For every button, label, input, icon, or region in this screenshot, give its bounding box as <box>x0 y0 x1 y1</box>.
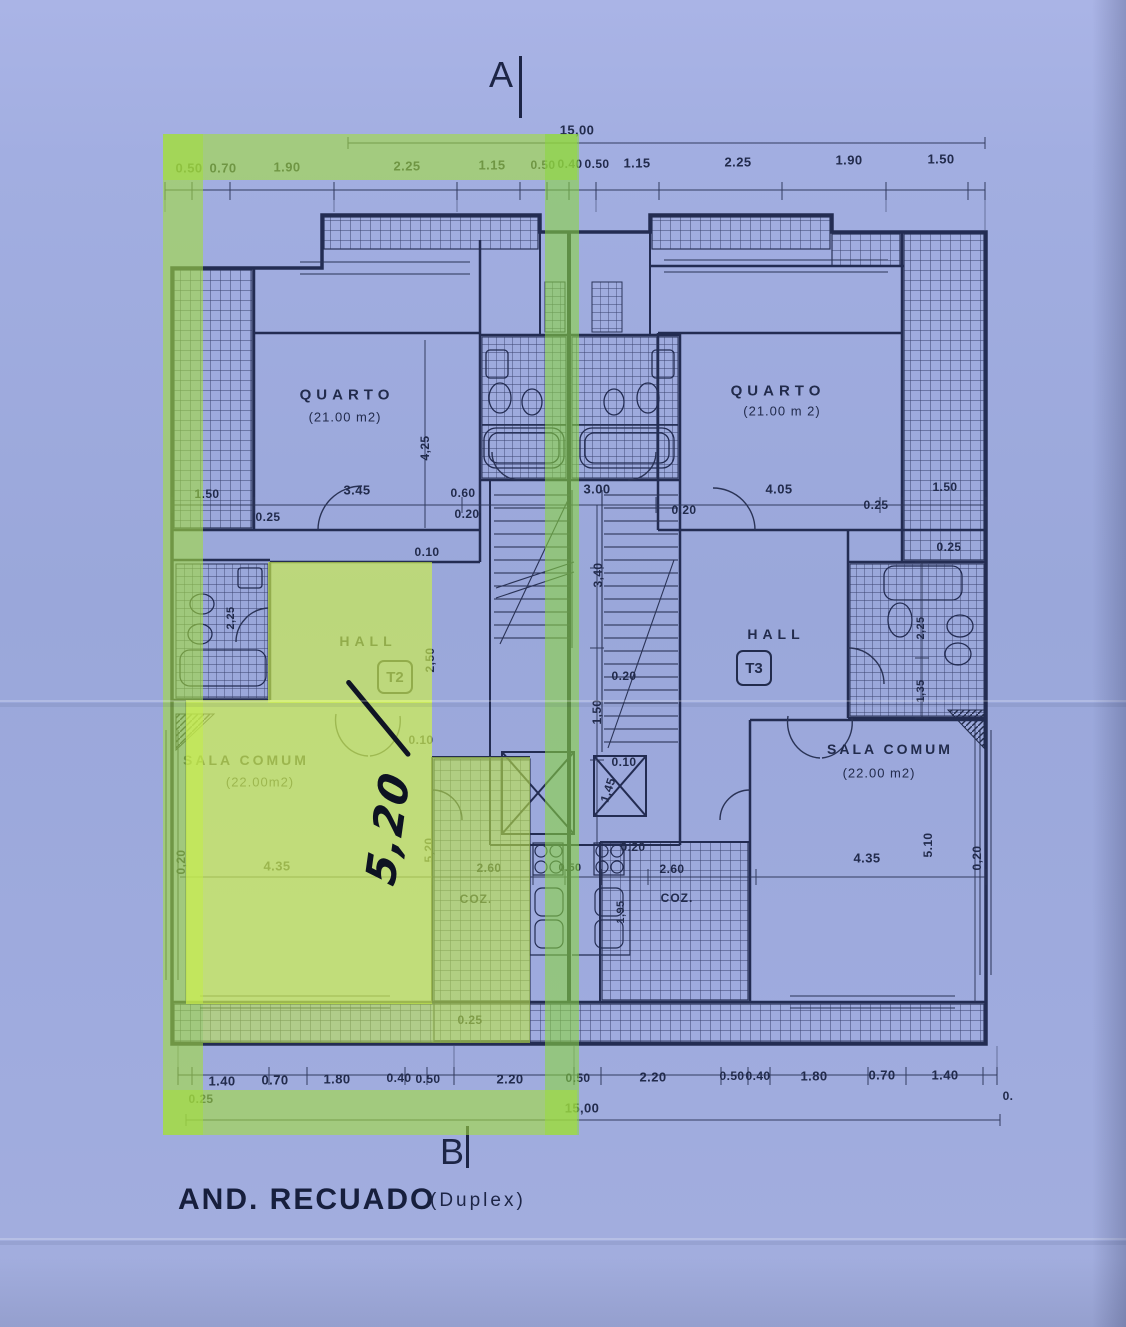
room-label-quarto-left: QUARTO <box>300 387 395 404</box>
paper-edge-shadow <box>1092 0 1126 1327</box>
room-label-sala-right: SALA COMUM <box>827 741 953 757</box>
room-label-coz-left: COZ. <box>460 892 493 906</box>
room-area-quarto-left: (21.00 m2) <box>309 410 382 425</box>
section-marker-a-line <box>519 56 522 118</box>
overall-dim-bottom: 15,00 <box>565 1101 600 1116</box>
room-label-sala-left: SALA COMUM <box>183 752 309 768</box>
unit-tag-t2: T2 <box>377 660 413 694</box>
room-area-quarto-right: (21.00 m 2) <box>743 404 820 419</box>
room-area-sala-right: (22.00 m2) <box>843 766 916 781</box>
room-label-hall-right: HALL <box>747 626 804 642</box>
paper-crease <box>0 700 1126 702</box>
unit-tag-t3: T3 <box>736 650 772 686</box>
drawing-title: AND. RECUADO <box>178 1183 435 1217</box>
floorplan-photo: 0.500.701.902.251.150.500.400.501.152.25… <box>0 0 1126 1327</box>
section-marker-a: A <box>489 54 513 96</box>
paper-bottom-shade <box>0 1257 1126 1327</box>
paper-crease <box>0 1241 1126 1245</box>
room-label-coz-right: COZ. <box>661 891 694 905</box>
room-label-quarto-right: QUARTO <box>731 383 826 400</box>
overall-dim-top: 15,00 <box>560 123 595 138</box>
paper-crease <box>0 1238 1126 1240</box>
drawing-title-sub: (Duplex) <box>430 1190 526 1212</box>
room-label-hall-left: HALL <box>339 633 396 649</box>
section-marker-b-line <box>466 1126 469 1168</box>
paper-crease <box>0 703 1126 707</box>
section-marker-b: B <box>440 1131 464 1173</box>
floorplan-drawing <box>0 0 1126 1327</box>
room-area-sala-left: (22.00m2) <box>226 775 294 790</box>
